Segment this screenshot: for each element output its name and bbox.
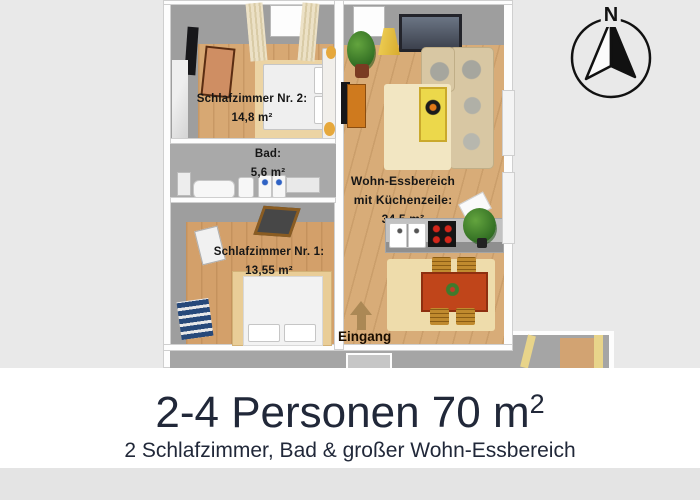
entrance-label: Eingang xyxy=(338,329,391,344)
entrance-arrow-icon xyxy=(350,301,372,331)
compass-needle-west xyxy=(586,19,611,79)
bedroom2-label: Schlafzimmer Nr. 2: 14,8 m² xyxy=(172,90,332,128)
bath-name: Bad: xyxy=(188,145,348,164)
dining-chair xyxy=(456,308,475,325)
stairwell-wood xyxy=(560,338,594,368)
dining-chair xyxy=(457,257,476,273)
living-name-line1: Wohn-Essbereich xyxy=(323,172,483,191)
stairwell-beam xyxy=(594,335,603,368)
bedroom1-area: 13,55 m² xyxy=(189,262,349,281)
bedroom1-label: Schlafzimmer Nr. 1: 13,55 m² xyxy=(189,243,349,281)
sofa-chaise xyxy=(449,47,494,169)
tv-sideboard xyxy=(347,84,366,128)
compass-north-icon: N xyxy=(565,8,657,100)
bedroom1-pillow xyxy=(248,324,280,342)
banner-title-text: 2-4 Personen 70 m xyxy=(155,388,529,437)
bedroom1-name: Schlafzimmer Nr. 1: xyxy=(189,243,349,262)
compass-needle-east xyxy=(611,19,635,77)
entrance-arrow-stem xyxy=(357,315,366,330)
footer-strip xyxy=(0,468,700,500)
caption-banner: 2-4 Personen 70 m2 2 Schlafzimmer, Bad &… xyxy=(0,368,700,468)
banner-subtitle: 2 Schlafzimmer, Bad & großer Wohn-Essber… xyxy=(0,439,700,463)
compass-north-label: N xyxy=(601,4,621,27)
dining-chair xyxy=(430,308,449,325)
dining-chair xyxy=(432,257,451,273)
bedroom2-area: 14,8 m² xyxy=(172,109,332,128)
coffee-table xyxy=(419,87,447,142)
bedroom1-shoe-shelf xyxy=(177,298,214,340)
banner-title: 2-4 Personen 70 m2 xyxy=(0,381,700,436)
entrance-arrow-head xyxy=(350,301,372,315)
bedroom2-wall-lamp xyxy=(326,46,336,59)
screenshot-root: Schlafzimmer Nr. 2: 14,8 m² Bad: 5,6 m² … xyxy=(0,0,700,500)
living-right-window xyxy=(502,172,515,244)
bedroom1-pillow xyxy=(284,324,316,342)
floor-plan: Schlafzimmer Nr. 2: 14,8 m² Bad: 5,6 m² … xyxy=(0,0,700,368)
cooktop xyxy=(428,221,456,247)
banner-title-superscript: 2 xyxy=(530,389,545,419)
kitchen-sink xyxy=(389,223,426,248)
bath-wall-bottom xyxy=(170,197,336,203)
living-plant-pot xyxy=(355,64,369,78)
hallway-floor xyxy=(170,351,518,368)
bedroom2-name: Schlafzimmer Nr. 2: xyxy=(172,90,332,109)
kitchen-plant-pot xyxy=(477,238,487,248)
table-centerpiece xyxy=(445,283,460,296)
living-right-window xyxy=(502,90,515,156)
